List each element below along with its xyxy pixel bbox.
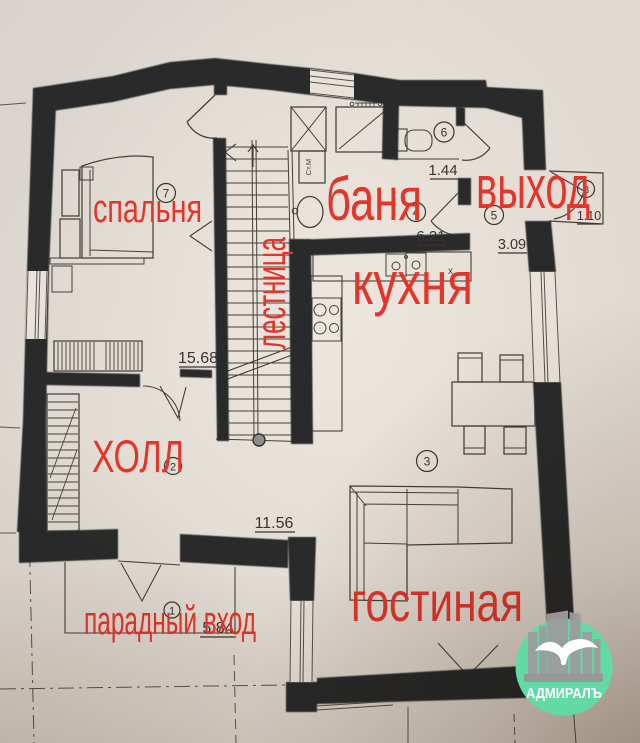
svg-text:АДМИРАЛЪ: АДМИРАЛЪ [526,685,602,702]
